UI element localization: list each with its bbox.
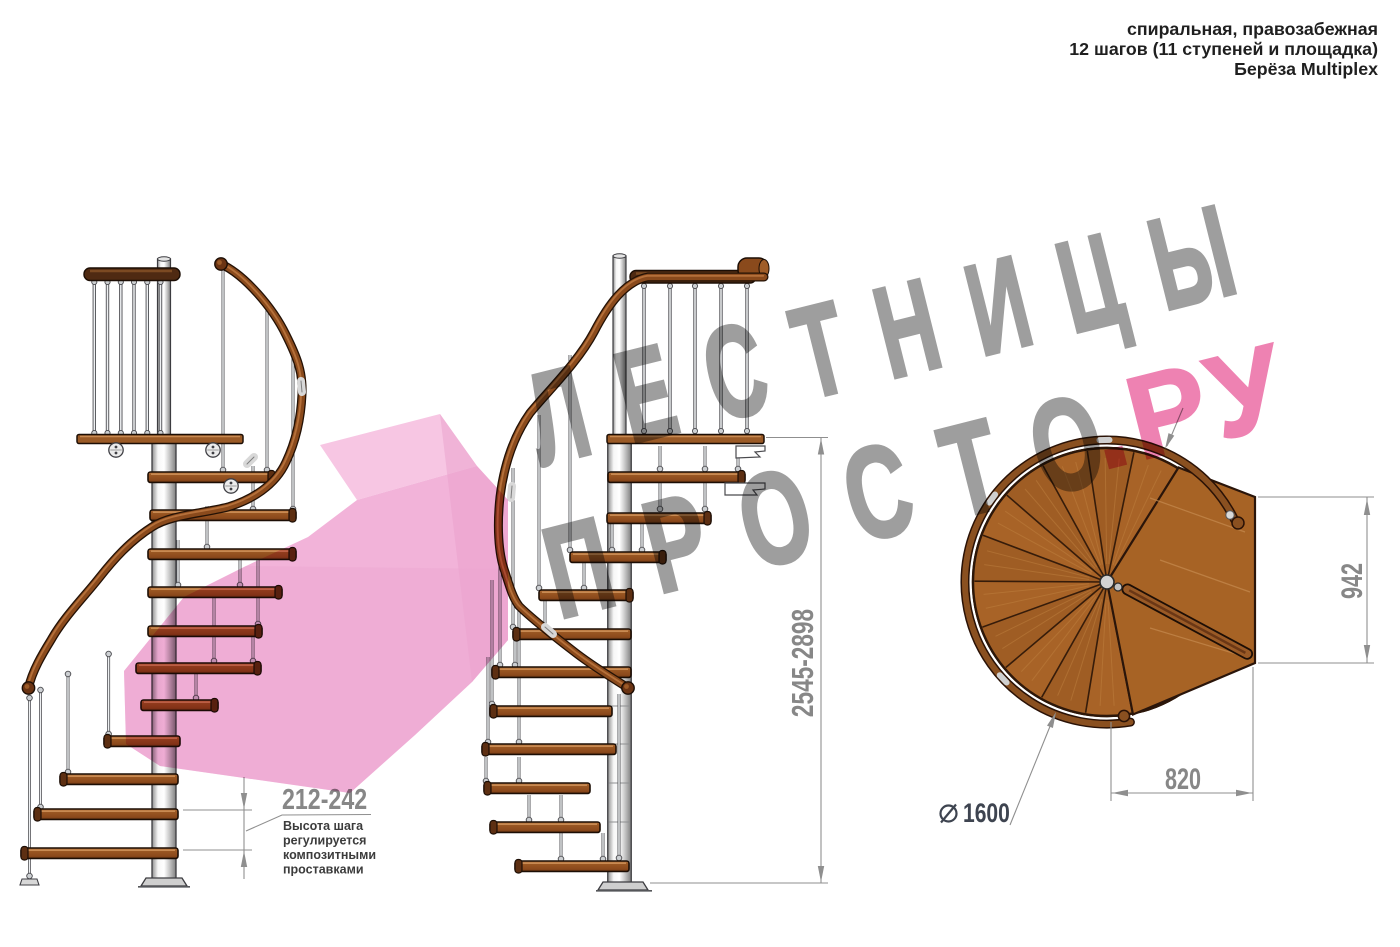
svg-text:Высота шага: Высота шага bbox=[283, 819, 364, 833]
svg-text:820: 820 bbox=[1165, 761, 1201, 795]
svg-text:проставками: проставками bbox=[283, 863, 364, 877]
svg-text:регулируется: регулируется bbox=[283, 834, 366, 848]
svg-text:спиральная, правозабежная: спиральная, правозабежная bbox=[1127, 19, 1378, 39]
svg-text:12 шагов (11 ступеней и площад: 12 шагов (11 ступеней и площадка) bbox=[1069, 39, 1378, 59]
svg-text:1600: 1600 bbox=[963, 799, 1010, 829]
svg-text:композитными: композитными bbox=[283, 848, 376, 862]
svg-text:2545-2898: 2545-2898 bbox=[784, 609, 819, 717]
svg-text:Берёза Multiplex: Берёза Multiplex bbox=[1234, 59, 1378, 79]
svg-text:942: 942 bbox=[1334, 563, 1368, 599]
